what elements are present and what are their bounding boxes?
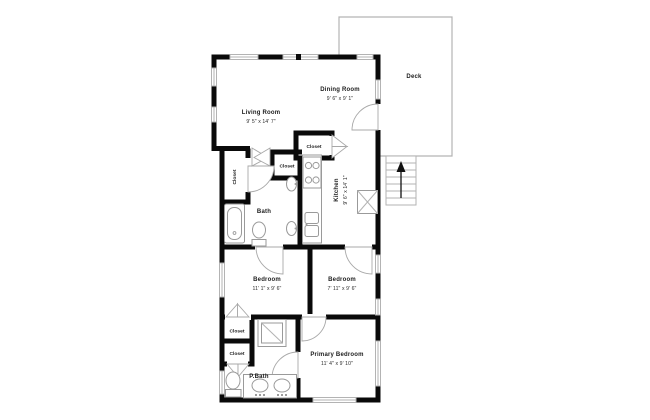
primary-bath-label: P.Bath <box>249 374 269 380</box>
bedroom-right-dims: 7' 11" x 9' 6" <box>328 286 357 292</box>
bedroom-left-dims: 11' 1" x 9' 6" <box>253 286 282 292</box>
primary-closet-2-label: Closet <box>230 351 245 357</box>
window <box>376 299 381 315</box>
dining-room-dims: 9' 6" x 9' 1" <box>327 96 353 102</box>
bedroom-left-label: Bedroom <box>253 277 281 283</box>
window <box>212 68 217 86</box>
window <box>376 341 381 386</box>
living-room-dims: 9' 5" x 14' 7" <box>246 119 275 125</box>
wall-post <box>296 54 301 60</box>
hall-closet-label: Closet <box>232 169 238 184</box>
small-closet-label: Closet <box>280 164 295 170</box>
window <box>376 80 381 99</box>
window <box>220 371 225 394</box>
bathtub-icon <box>225 204 245 243</box>
bedroom-right-label: Bedroom <box>328 277 356 283</box>
stove-icon <box>303 157 321 188</box>
primary-bedroom-dims: 11' 4" x 9' 10" <box>321 361 353 367</box>
window <box>376 255 381 273</box>
stairs-icon <box>386 156 416 205</box>
shower-icon <box>258 320 286 347</box>
living-room-label: Living Room <box>242 110 281 116</box>
window <box>212 107 217 122</box>
window <box>220 263 225 297</box>
floor-plan: Living Room 9' 5" x 14' 7" Dining Room 9… <box>0 0 650 420</box>
window <box>357 55 373 60</box>
bath-label: Bath <box>257 209 271 215</box>
window <box>313 398 356 403</box>
kitchen-closet-label: Closet <box>307 144 322 150</box>
deck-label: Deck <box>406 74 422 80</box>
primary-bedroom-label: Primary Bedroom <box>310 352 363 358</box>
water-heater-icon <box>358 191 378 214</box>
kitchen-dims: 9' 6" x 14' 1" <box>343 175 349 204</box>
toilet-primary-icon <box>226 372 242 397</box>
kitchen-label: Kitchen <box>334 178 340 202</box>
primary-closet-1-label: Closet <box>230 329 245 335</box>
dining-room-label: Dining Room <box>320 87 360 93</box>
toilet-icon <box>252 222 266 246</box>
window <box>230 55 258 60</box>
